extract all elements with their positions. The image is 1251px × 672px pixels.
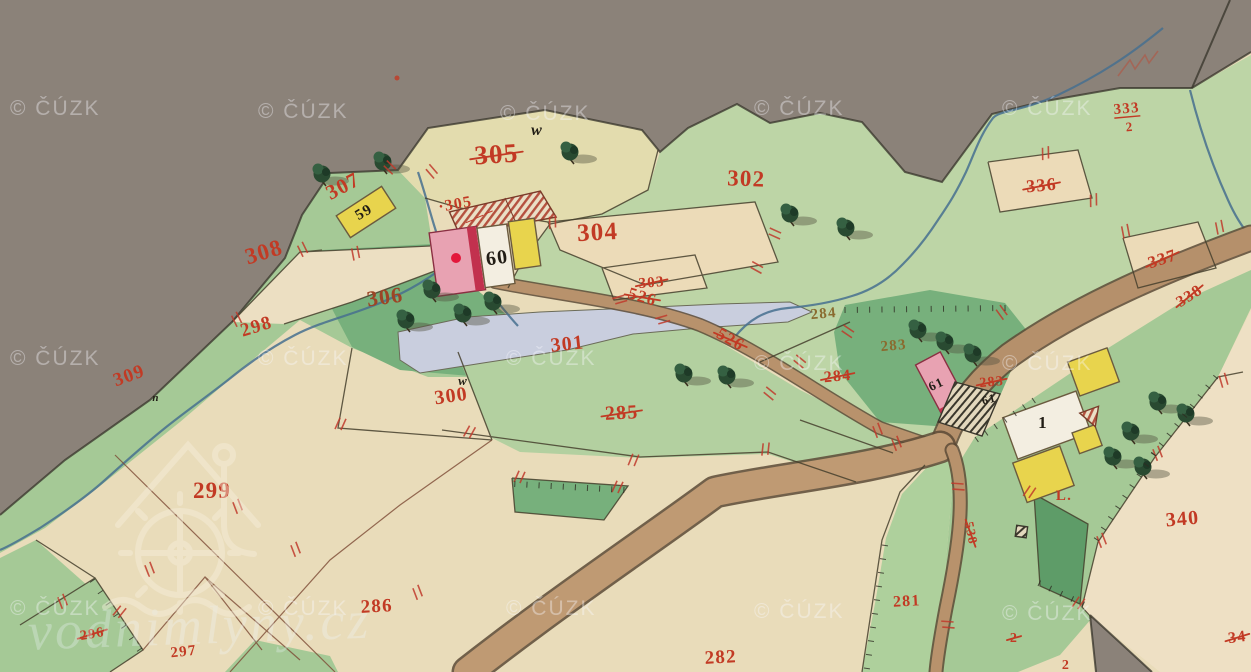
svg-text:282: 282 bbox=[704, 646, 737, 669]
svg-text:n: n bbox=[152, 392, 159, 404]
cuzk-watermark: © ČÚZK bbox=[10, 97, 100, 120]
svg-text:2: 2 bbox=[1062, 658, 1070, 672]
svg-text:340: 340 bbox=[1165, 507, 1200, 532]
parcel-label-1: 1 bbox=[1038, 413, 1048, 432]
svg-text:L.: L. bbox=[1056, 488, 1072, 504]
parcel-label-60: 60 bbox=[485, 246, 510, 271]
svg-text:300: 300 bbox=[433, 383, 469, 409]
parcel-label-304: 304 bbox=[576, 218, 618, 247]
building-small-hatched bbox=[1015, 525, 1027, 537]
parcel-label-340: 340 bbox=[1165, 507, 1200, 532]
parcel-label-283: 283 bbox=[976, 374, 1008, 392]
parcel-label-284: 284 bbox=[810, 305, 837, 323]
cuzk-watermark: © ČÚZK bbox=[754, 352, 844, 375]
cuzk-watermark: © ČÚZK bbox=[1002, 97, 1092, 120]
svg-text:284: 284 bbox=[810, 305, 837, 323]
parcel-label-306: 306 bbox=[365, 282, 405, 312]
cuzk-watermark: © ČÚZK bbox=[506, 597, 596, 620]
svg-text:304: 304 bbox=[576, 218, 618, 247]
svg-text:2: 2 bbox=[1125, 119, 1134, 135]
cadastral-map[interactable]: 305·30530759w304302303526526308306298309… bbox=[0, 0, 1251, 672]
brand-watermark-text: vodnimlyny.cz bbox=[27, 590, 372, 662]
svg-text:302: 302 bbox=[727, 165, 766, 191]
cuzk-watermark: © ČÚZK bbox=[754, 97, 844, 120]
parcel-label-302: 302 bbox=[727, 165, 766, 191]
cuzk-watermark: © ČÚZK bbox=[258, 347, 348, 370]
svg-text:60: 60 bbox=[485, 246, 510, 271]
parcel-label-2: 2 bbox=[1062, 658, 1070, 672]
mill-marker-dot[interactable] bbox=[451, 253, 461, 263]
svg-text:336: 336 bbox=[1025, 174, 1057, 197]
cuzk-watermark: © ČÚZK bbox=[506, 347, 596, 370]
parcel-label-2: 2 bbox=[1125, 119, 1134, 135]
cuzk-watermark: © ČÚZK bbox=[500, 102, 590, 125]
red-dot-mark bbox=[395, 76, 400, 81]
cuzk-watermark: © ČÚZK bbox=[1002, 602, 1092, 625]
parcel-label-283: 283 bbox=[880, 337, 907, 355]
parcel-label-n: n bbox=[152, 392, 159, 404]
svg-text:281: 281 bbox=[893, 592, 921, 610]
parcel-label-L: L. bbox=[1056, 488, 1072, 504]
parcel-label-333: 333 bbox=[1113, 100, 1140, 118]
parcel-label-285: 285 bbox=[601, 401, 643, 425]
parcel-label-281: 281 bbox=[893, 592, 921, 610]
cuzk-watermark: © ČÚZK bbox=[10, 347, 100, 370]
cuzk-watermark: © ČÚZK bbox=[258, 100, 348, 123]
cuzk-watermark: © ČÚZK bbox=[754, 600, 844, 623]
svg-text:333: 333 bbox=[1113, 100, 1140, 118]
svg-text:283: 283 bbox=[880, 337, 907, 355]
parcel-label-282: 282 bbox=[704, 646, 737, 669]
parcel-label-336: 336 bbox=[1022, 173, 1061, 196]
cuzk-watermark: © ČÚZK bbox=[1002, 352, 1092, 375]
svg-text:306: 306 bbox=[365, 282, 405, 312]
cadastral-map-viewport[interactable]: 305·30530759w304302303526526308306298309… bbox=[0, 0, 1251, 672]
parcel-label-305: 305 bbox=[469, 137, 524, 171]
svg-text:1: 1 bbox=[1038, 413, 1048, 432]
parcel-label-300: 300 bbox=[433, 383, 469, 409]
